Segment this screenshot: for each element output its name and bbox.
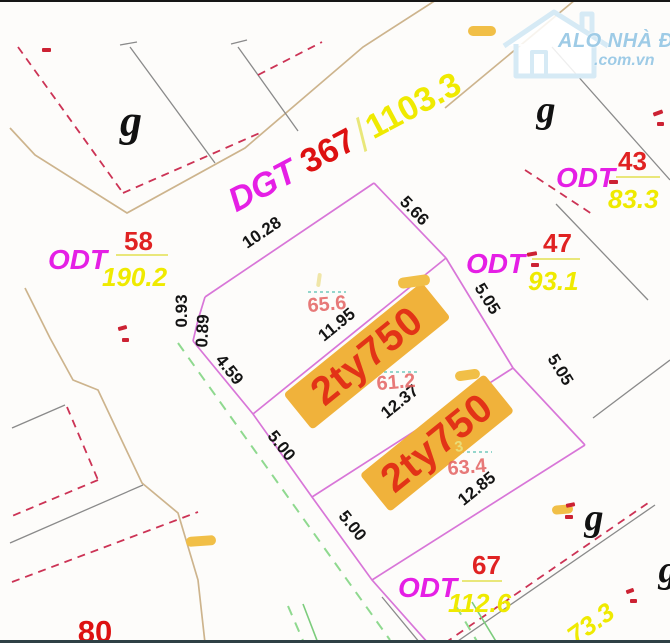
yellow-highlight-mark bbox=[186, 535, 217, 547]
plot-area-value: 65.6 bbox=[307, 292, 348, 318]
plot-area-value: 61.2 bbox=[376, 370, 417, 396]
parcel-area: 112.6 bbox=[448, 588, 511, 619]
yellow-highlight-mark bbox=[468, 26, 496, 36]
parcel-code: ODT bbox=[556, 162, 615, 194]
parcel-number: 47 bbox=[543, 228, 572, 259]
parcel-area: 83.3 bbox=[608, 184, 659, 215]
zone-letter: g bbox=[659, 548, 670, 592]
parcel-fraction-bar bbox=[116, 254, 168, 256]
watermark-domain-text: .com.vn bbox=[594, 52, 654, 70]
zone-letter: g bbox=[537, 88, 556, 132]
parcel-area: 190.2 bbox=[102, 262, 167, 293]
red-tick-mark bbox=[565, 515, 573, 519]
red-tick-mark bbox=[42, 48, 51, 52]
cadastral-map-canvas: DGT 367 1103.3 ALO NHÀ ĐẤT .com.vn ODT58… bbox=[0, 0, 670, 643]
parcel-fraction-bar bbox=[462, 580, 502, 582]
parcel-number: 67 bbox=[472, 550, 501, 581]
watermark-logo: ALO NHÀ ĐẤT .com.vn bbox=[492, 4, 670, 84]
dimension-label: 0.89 bbox=[192, 314, 214, 348]
zone-letter: g bbox=[585, 496, 604, 540]
zone-letter: g bbox=[120, 96, 142, 147]
red-tick-mark bbox=[609, 180, 618, 184]
parcel-number: 58 bbox=[124, 226, 153, 257]
parcel-fraction-bar bbox=[616, 176, 660, 178]
parcel-area: 93.1 bbox=[528, 266, 579, 297]
top-border-strip bbox=[0, 0, 670, 2]
plot-area-value: 63.4 bbox=[447, 455, 488, 481]
parcel-number: 43 bbox=[618, 146, 647, 177]
watermark-brand-text: ALO NHÀ ĐẤT bbox=[558, 30, 670, 53]
road-edge-lines bbox=[10, 0, 575, 643]
red-tick-mark bbox=[630, 599, 637, 603]
parcel-fraction-bar bbox=[532, 258, 580, 260]
parcel-code: ODT bbox=[48, 244, 107, 276]
dimension-label: 0.93 bbox=[172, 294, 192, 327]
parcel-code: ODT bbox=[466, 248, 525, 280]
red-tick-mark bbox=[122, 338, 129, 342]
map-annotation: 80 bbox=[78, 614, 112, 643]
red-tick-mark bbox=[531, 263, 539, 267]
red-tick-mark bbox=[657, 122, 664, 126]
